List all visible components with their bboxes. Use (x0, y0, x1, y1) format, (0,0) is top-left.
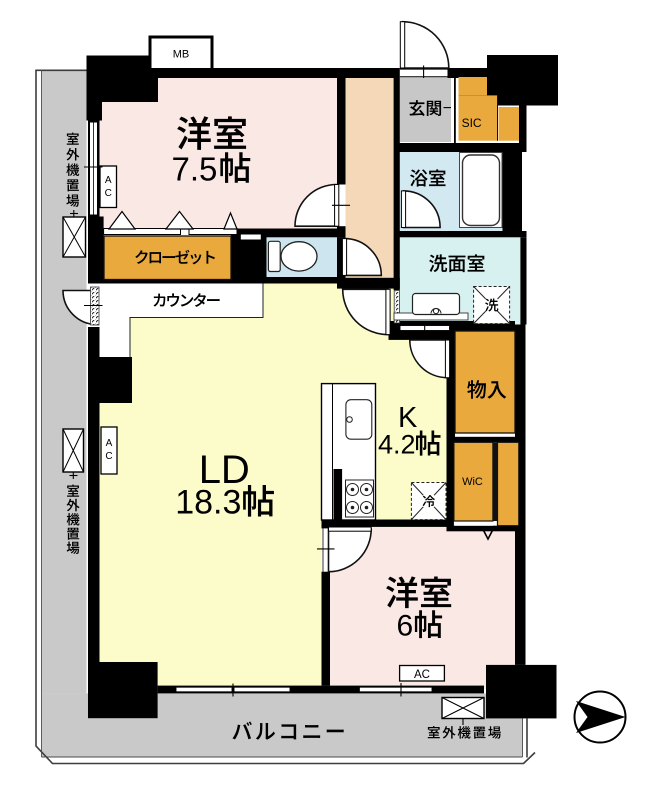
svg-text:6: 6 (397, 609, 414, 642)
svg-text:SIC: SIC (462, 116, 482, 130)
svg-text:WiC: WiC (462, 476, 483, 488)
svg-text:C: C (105, 451, 112, 462)
svg-text:MB: MB (173, 49, 190, 61)
svg-text:4.2: 4.2 (378, 430, 416, 460)
svg-text:A: A (105, 175, 112, 186)
svg-text:18.3: 18.3 (175, 484, 241, 522)
svg-text:AC: AC (414, 669, 430, 681)
svg-text:C: C (105, 188, 112, 199)
svg-text:A: A (106, 438, 113, 449)
svg-text:7.5: 7.5 (172, 150, 218, 187)
